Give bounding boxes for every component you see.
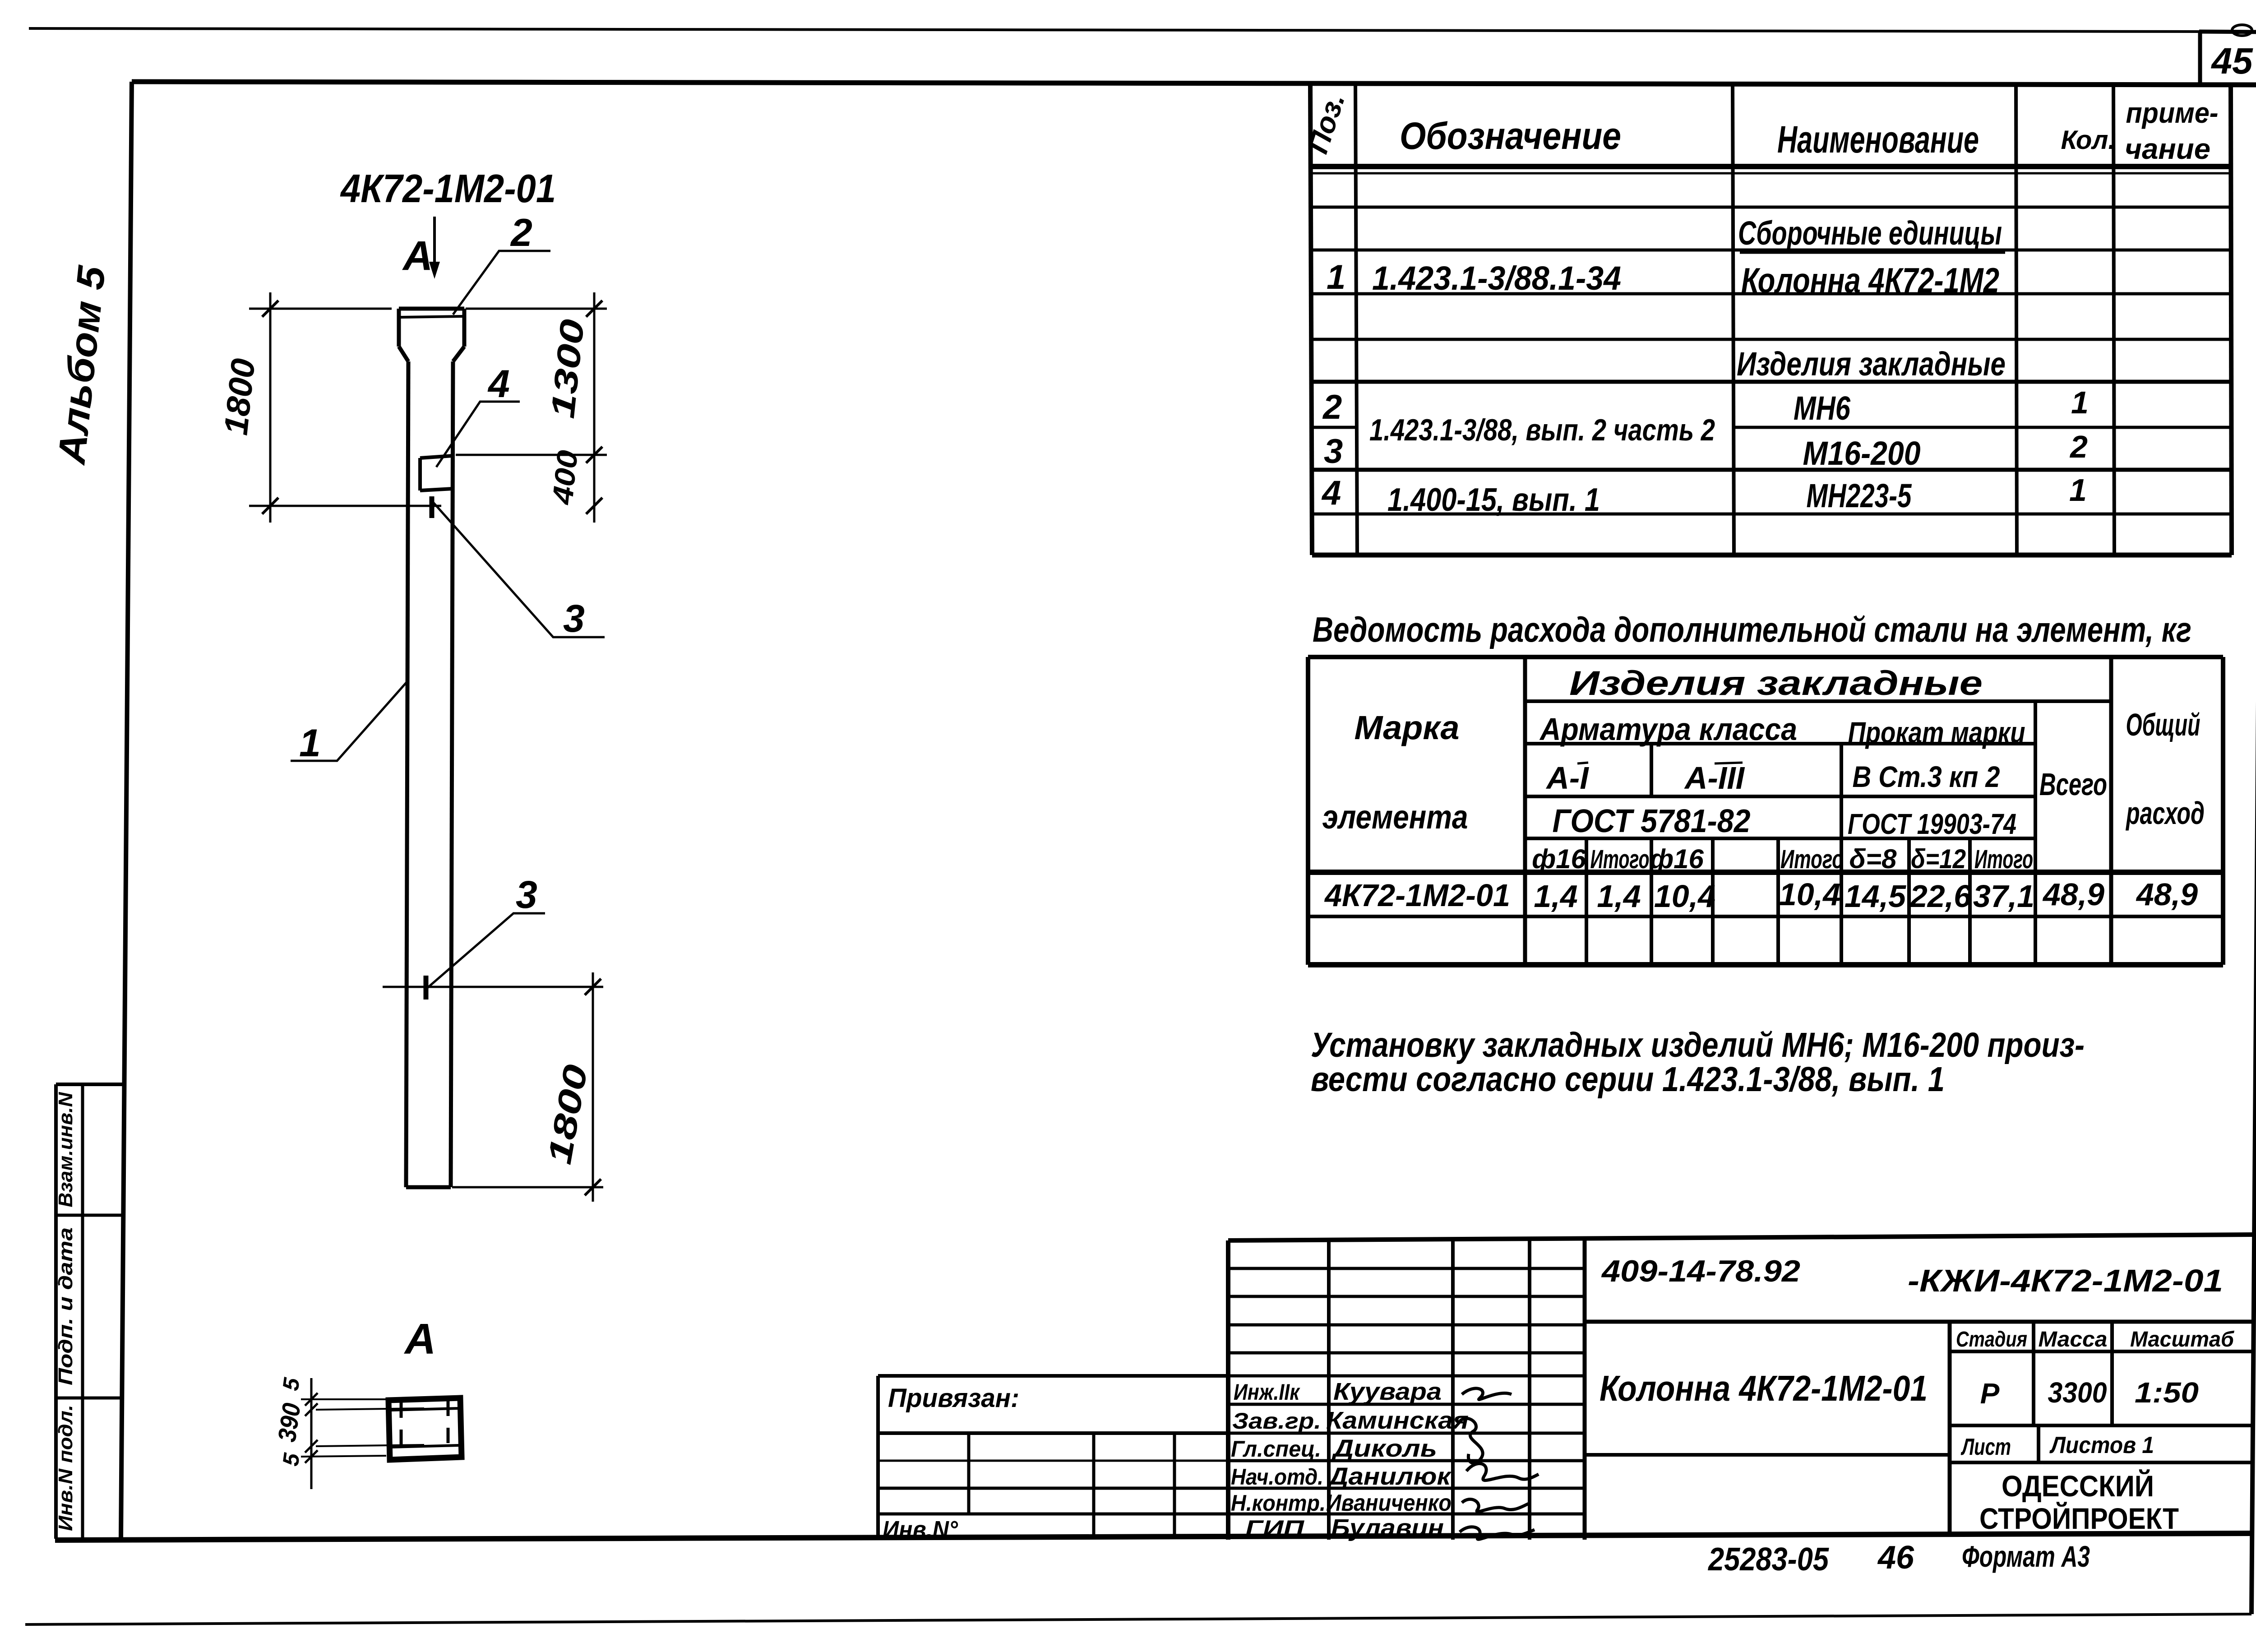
svg-text:4: 4 [487,362,510,406]
svg-text:1: 1 [299,722,321,765]
svg-text:4К72-1М2-01: 4К72-1М2-01 [340,166,556,211]
svg-text:Стадия: Стадия [1956,1328,2027,1351]
svg-text:А: А [404,1315,436,1363]
svg-text:-КЖИ-4К72-1М2-01: -КЖИ-4К72-1М2-01 [1908,1263,2223,1298]
svg-text:1,4: 1,4 [1534,879,1577,914]
svg-text:Колонна 4К72-1М2: Колонна 4К72-1М2 [1741,260,1999,300]
svg-text:3: 3 [1324,432,1343,471]
svg-text:Итого: Итого [1590,845,1650,874]
svg-text:37,1: 37,1 [1973,879,2034,914]
svg-text:Булавин: Булавин [1331,1514,1444,1541]
svg-text:Сборочные единицы: Сборочные единицы [1738,214,2002,252]
svg-text:ОДЕССКИЙ: ОДЕССКИЙ [2002,1469,2154,1503]
svg-text:расход: расход [2126,796,2205,831]
svg-text:Листов 1: Листов 1 [2049,1432,2154,1458]
svg-text:Формат А3: Формат А3 [1962,1540,2090,1573]
svg-text:Арматура класса: Арматура класса [1539,712,1797,747]
svg-text:Лист: Лист [1960,1434,2011,1460]
svg-text:Общий: Общий [2126,707,2201,742]
svg-text:48,9: 48,9 [2042,877,2104,912]
svg-text:3: 3 [563,597,585,640]
svg-text:ГИП: ГИП [1245,1516,1304,1541]
svg-text:Привязан:: Привязан: [888,1384,1019,1413]
svg-text:3: 3 [516,873,537,916]
svg-text:1: 1 [2069,472,2087,508]
svg-text:А: А [402,233,433,279]
svg-text:Масса: Масса [2039,1328,2108,1351]
svg-text:δ=12: δ=12 [1911,844,1966,874]
svg-text:элемента: элемента [1322,798,1468,836]
svg-text:22,6: 22,6 [1909,879,1972,914]
svg-text:Зав.гр.: Зав.гр. [1232,1408,1321,1434]
svg-text:МН223-5: МН223-5 [1807,477,1912,514]
svg-text:Инж.IIк: Инж.IIк [1234,1379,1300,1405]
svg-text:ф16: ф16 [1650,844,1704,874]
svg-text:Установку закладных изделий МН: Установку закладных изделий МН6; М16-200… [1311,1026,2085,1064]
svg-text:Итого: Итого [1780,845,1844,874]
svg-text:3300: 3300 [2048,1376,2107,1409]
svg-text:Ведомость расхода дополнительн: Ведомость расхода дополнительной стали н… [1313,610,2191,649]
svg-text:приме-: приме- [2126,97,2219,129]
svg-text:Инв.N подл.: Инв.N подл. [55,1405,77,1531]
svg-text:Обозначение: Обозначение [1400,115,1621,157]
svg-text:45: 45 [2210,41,2253,82]
svg-text:ГОСТ 19903-74: ГОСТ 19903-74 [1848,808,2016,840]
svg-text:вести согласно серии 1.423.1-3: вести согласно серии 1.423.1-3/88, вып. … [1311,1060,1945,1099]
svg-text:δ=8: δ=8 [1849,844,1897,874]
svg-text:Куувара: Куувара [1333,1378,1442,1405]
svg-text:400: 400 [546,449,584,507]
svg-text:Каминская: Каминская [1326,1407,1469,1434]
svg-text:Изделия закладные: Изделия закладные [1737,345,2006,383]
svg-text:Нач.отд.: Нач.отд. [1231,1464,1323,1490]
svg-text:10,4: 10,4 [1654,879,1715,914]
svg-text:2: 2 [510,211,532,255]
svg-text:Взам.инв.N: Взам.инв.N [55,1092,77,1207]
svg-text:10,4: 10,4 [1779,877,1840,912]
svg-text:ГОСТ 5781-82: ГОСТ 5781-82 [1553,803,1751,839]
svg-text:Прокат марки: Прокат марки [1848,716,2025,749]
svg-text:Диколь: Диколь [1331,1435,1437,1462]
svg-text:1:50: 1:50 [2135,1376,2199,1409]
svg-text:Итого: Итого [1974,845,2033,874]
svg-text:Всего: Всего [2039,767,2107,802]
svg-text:2: 2 [1322,388,1342,426]
svg-text:4К72-1М2-01: 4К72-1М2-01 [1324,878,1510,913]
svg-text:1: 1 [1327,258,1345,296]
svg-text:Данилюк: Данилюк [1327,1463,1452,1490]
svg-text:Гл.спец.: Гл.спец. [1231,1436,1321,1462]
svg-text:1: 1 [2071,385,2089,420]
svg-text:Марка: Марка [1355,709,1460,746]
svg-text:А-III: А-III [1684,760,1745,796]
svg-text:МН6: МН6 [1794,389,1851,427]
svg-text:4: 4 [1321,474,1341,512]
svg-text:ф16: ф16 [1532,844,1586,874]
svg-text:Инв.N°: Инв.N° [883,1516,958,1543]
svg-text:Изделия закладные: Изделия закладные [1569,664,1983,703]
svg-text:Н.контр.: Н.контр. [1231,1490,1326,1516]
svg-text:1,4: 1,4 [1597,879,1641,914]
svg-text:А-I: А-I [1545,760,1589,796]
svg-text:Иваниченко: Иваниченко [1326,1490,1452,1516]
svg-text:1.423.1-3/88.1-34: 1.423.1-3/88.1-34 [1372,259,1621,297]
svg-text:2: 2 [2069,429,2088,464]
svg-text:Подп. и дата: Подп. и дата [55,1227,77,1385]
svg-text:М16-200: М16-200 [1803,435,1921,472]
svg-text:чание: чание [2125,133,2210,165]
svg-text:390: 390 [273,1401,306,1444]
svg-text:Масштаб: Масштаб [2130,1328,2234,1351]
svg-text:409-14-78.92: 409-14-78.92 [1601,1254,1800,1288]
svg-text:Кол.: Кол. [2061,125,2115,155]
svg-text:14,5: 14,5 [1845,879,1906,914]
svg-text:1.423.1-3/88, вып. 2 часть 2: 1.423.1-3/88, вып. 2 часть 2 [1369,413,1715,447]
svg-text:25283-05: 25283-05 [1707,1541,1829,1578]
svg-text:Р: Р [1980,1377,2000,1410]
svg-text:46: 46 [1877,1540,1914,1576]
svg-text:В Ст.3 кп 2: В Ст.3 кп 2 [1853,760,2000,793]
svg-text:48,9: 48,9 [2136,877,2198,912]
svg-text:СТРОЙПРОЕКТ: СТРОЙПРОЕКТ [1979,1501,2179,1535]
svg-text:1.400-15, вып. 1: 1.400-15, вып. 1 [1387,482,1600,518]
svg-text:Наименование: Наименование [1777,118,1979,161]
svg-text:Колонна 4К72-1М2-01: Колонна 4К72-1М2-01 [1600,1368,1928,1408]
svg-text:1800: 1800 [217,356,262,437]
